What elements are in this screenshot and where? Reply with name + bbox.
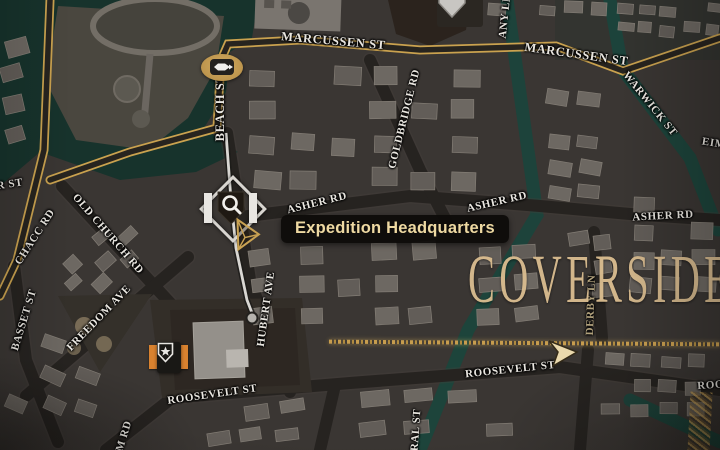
building <box>372 167 397 185</box>
building <box>275 428 299 442</box>
building <box>539 5 555 15</box>
building <box>338 279 361 297</box>
park-grove <box>96 336 112 352</box>
park-pond <box>114 76 140 102</box>
building <box>454 70 480 87</box>
badge-plate <box>157 342 181 373</box>
building <box>376 275 398 292</box>
building <box>564 1 583 13</box>
building <box>291 133 315 151</box>
hq-building <box>193 321 249 379</box>
district-border-strip <box>687 391 712 450</box>
ferry-plate <box>210 59 234 75</box>
building <box>301 246 324 264</box>
expedition-headquarters-marker[interactable] <box>198 175 268 249</box>
route-end-dot <box>247 313 258 324</box>
building <box>688 354 704 367</box>
building <box>659 25 675 38</box>
landmark-shield-marker[interactable] <box>437 0 483 27</box>
building <box>375 307 399 325</box>
building <box>659 6 676 17</box>
building <box>249 136 275 155</box>
park-pond-small <box>132 110 150 128</box>
building <box>301 308 323 324</box>
building <box>334 66 362 86</box>
badge-star-icon <box>157 342 174 363</box>
building <box>300 276 325 293</box>
plaza <box>254 0 341 31</box>
building <box>331 138 355 157</box>
building <box>360 389 390 407</box>
building <box>486 423 512 436</box>
building <box>404 388 433 403</box>
building <box>244 403 270 421</box>
building <box>577 184 599 199</box>
marker-side-bar <box>249 193 257 223</box>
building <box>545 88 569 106</box>
building <box>412 241 437 261</box>
shield-icon <box>437 0 467 19</box>
building <box>708 3 720 13</box>
building <box>660 402 677 413</box>
building <box>591 2 607 16</box>
park-oval-path <box>93 0 217 53</box>
police-badge-marker[interactable] <box>149 342 189 374</box>
building <box>371 242 397 260</box>
building <box>635 379 651 391</box>
building <box>548 134 570 150</box>
building <box>451 172 476 191</box>
building <box>684 21 701 32</box>
building <box>249 101 275 119</box>
building <box>630 353 650 367</box>
building <box>374 66 397 85</box>
building <box>411 103 437 120</box>
building <box>638 21 652 33</box>
building <box>631 405 648 417</box>
ferry-boat-marker[interactable] <box>201 54 243 81</box>
building <box>605 352 624 365</box>
building <box>706 24 719 36</box>
location-tooltip: Expedition Headquarters <box>281 215 509 243</box>
building <box>290 171 316 190</box>
marker-side-bar <box>204 193 212 223</box>
building <box>452 136 478 153</box>
building <box>408 306 432 324</box>
building <box>451 99 474 118</box>
building <box>411 172 435 189</box>
cursor-arrow-icon <box>549 339 579 369</box>
building <box>634 225 653 241</box>
building <box>448 390 477 404</box>
district-name: COVERSIDE <box>468 241 720 319</box>
building <box>249 71 274 87</box>
building <box>617 3 634 14</box>
building <box>369 101 396 119</box>
building <box>658 379 677 392</box>
building <box>618 22 635 32</box>
building <box>359 420 386 437</box>
building <box>639 5 655 15</box>
building <box>601 404 620 414</box>
building <box>691 222 713 240</box>
building <box>577 91 601 107</box>
boat-icon <box>210 59 234 75</box>
game-map[interactable]: MARCUSSEN ST MARCUSSEN ST BEACH ST ANY L… <box>0 0 720 450</box>
building <box>661 357 681 369</box>
building <box>577 135 598 149</box>
